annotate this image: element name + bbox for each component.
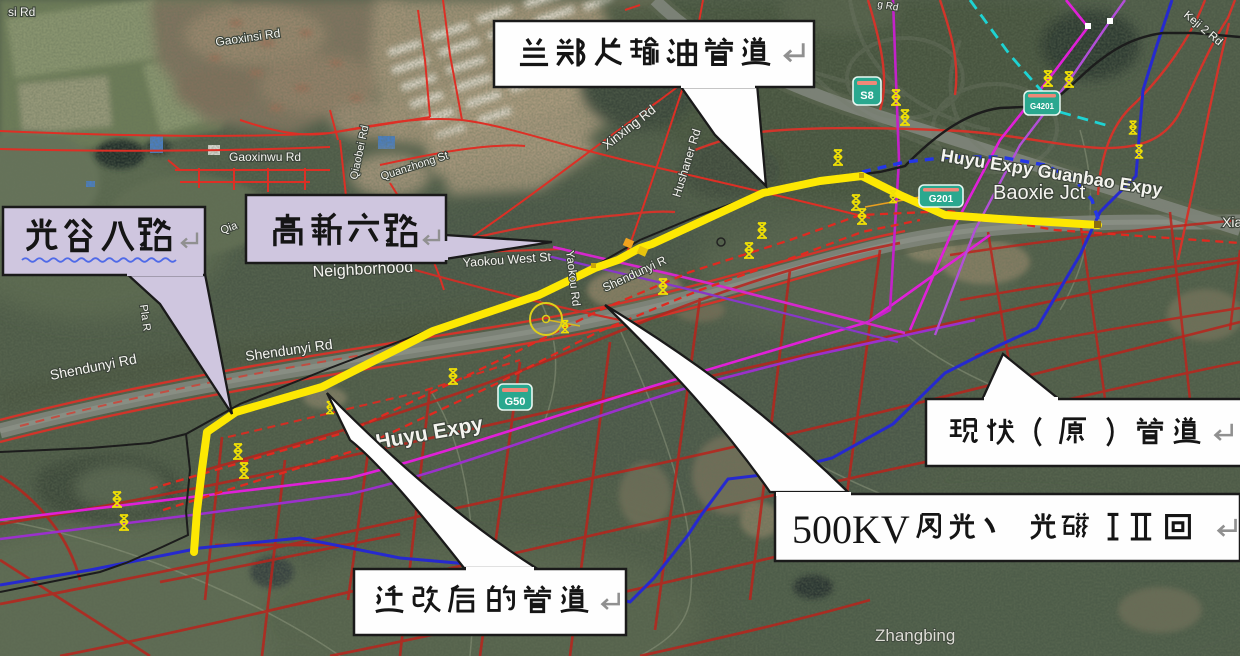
svg-text:Gaoxinwu Rd: Gaoxinwu Rd (229, 150, 301, 164)
svg-text:Baoxie Jct: Baoxie Jct (993, 182, 1086, 204)
svg-text:G4201: G4201 (1030, 102, 1055, 111)
svg-text:S8: S8 (860, 90, 873, 102)
svg-text:G201: G201 (929, 194, 954, 205)
svg-text:Zhangbing: Zhangbing (875, 626, 955, 645)
svg-text:si Rd: si Rd (8, 5, 35, 19)
svg-text:G50: G50 (505, 396, 526, 408)
svg-text:500KV: 500KV (792, 507, 910, 552)
svg-text:Xia: Xia (1222, 214, 1240, 230)
